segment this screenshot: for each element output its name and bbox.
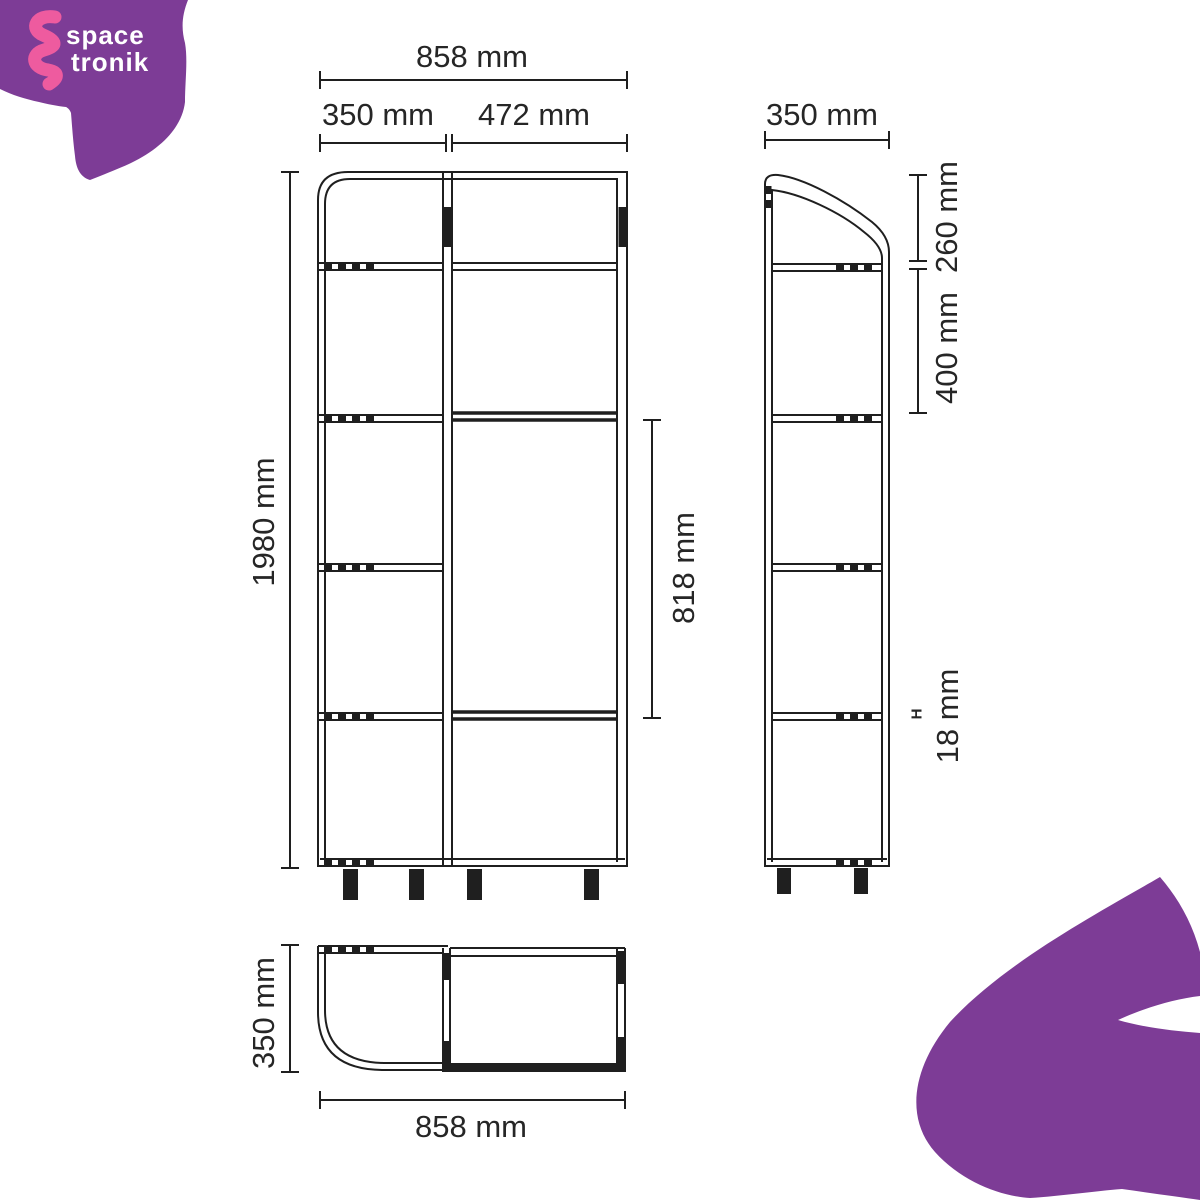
- corner-joint-mark: [617, 951, 625, 984]
- foot: [409, 869, 424, 900]
- dim-plan-width: [320, 1091, 625, 1109]
- foot: [854, 868, 868, 894]
- front-height-label: 1980 mm: [246, 457, 282, 586]
- hinge-mark: [619, 207, 627, 247]
- logo-text-line2: tronik: [71, 47, 149, 78]
- furniture-technical-drawing: [0, 0, 1200, 1200]
- front-opening-height-label: 818 mm: [666, 512, 702, 624]
- bottom-right-brand-blob: [916, 877, 1200, 1200]
- dim-plan-depth: [281, 945, 299, 1072]
- side-depth-label: 350 mm: [766, 97, 878, 133]
- plan-view-drawing: [318, 946, 625, 1072]
- plan-back-panel: [450, 1063, 625, 1072]
- dim-front-height: [281, 172, 299, 868]
- shelf-thickness-marker: H: [909, 709, 926, 720]
- dim-front-left-width: [320, 134, 446, 152]
- side-shelf-thickness-label: 18 mm: [930, 669, 966, 764]
- dim-side-top-section: [909, 175, 927, 261]
- dim-side-depth: [765, 131, 889, 149]
- foot: [467, 869, 482, 900]
- plan-depth-label: 350 mm: [246, 957, 282, 1069]
- dim-side-shelf-spacing: [909, 269, 927, 413]
- foot: [777, 868, 791, 894]
- technical-drawing-page: space tronik 858 mm 350 mm 472 mm 1980 m…: [0, 0, 1200, 1200]
- front-right-width-label: 472 mm: [478, 97, 590, 133]
- plan-width-label: 858 mm: [415, 1109, 527, 1145]
- side-view-drawing: [765, 175, 889, 894]
- front-left-width-label: 350 mm: [322, 97, 434, 133]
- dim-front-opening-height: [643, 420, 661, 718]
- front-total-width-label: 858 mm: [416, 39, 528, 75]
- dim-front-right-width: [452, 134, 627, 152]
- corner-joint-mark: [443, 953, 451, 980]
- hinge-mark: [444, 207, 452, 247]
- foot: [343, 869, 358, 900]
- foot: [584, 869, 599, 900]
- front-view-drawing: [318, 172, 627, 900]
- side-shelf-spacing-label: 400 mm: [929, 292, 965, 404]
- corner-joint-mark: [443, 1041, 451, 1072]
- side-top-section-label: 260 mm: [929, 161, 965, 273]
